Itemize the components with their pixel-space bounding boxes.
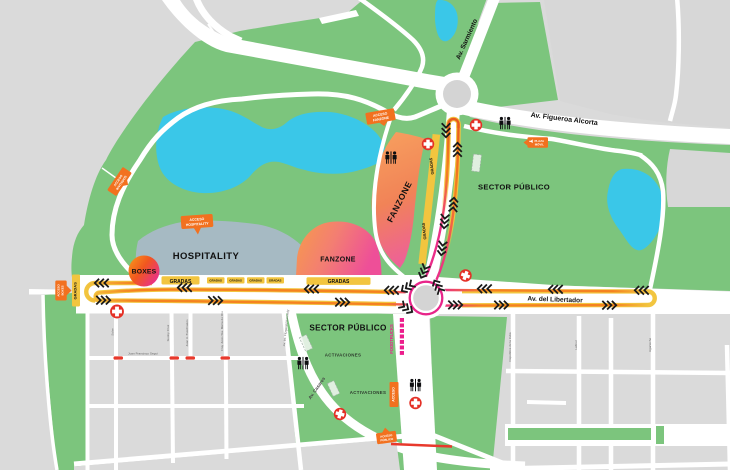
svg-text:Lafinur: Lafinur [574, 340, 578, 349]
svg-text:República de la India: República de la India [508, 332, 512, 361]
svg-text:ACTIVACIONES: ACTIVACIONES [350, 390, 386, 395]
svg-text:Godoy Cruz: Godoy Cruz [166, 324, 170, 341]
svg-text:FOODTRUCKS: FOODTRUCKS [389, 324, 394, 354]
svg-text:GRADAS: GRADAS [72, 282, 77, 300]
svg-text:SECTOR PÚBLICO: SECTOR PÚBLICO [478, 183, 550, 192]
svg-text:GRADAS: GRADAS [269, 278, 282, 282]
svg-text:Juan A. Buschiazzo: Juan A. Buschiazzo [185, 319, 189, 346]
svg-text:ACCESO: ACCESO [392, 387, 396, 402]
svg-text:FANZONE: FANZONE [320, 257, 356, 264]
svg-text:GRADAS: GRADAS [209, 278, 222, 282]
svg-text:Fray Justo Sta. María de Oro: Fray Justo Sta. María de Oro [220, 311, 224, 351]
svg-text:GRADAS: GRADAS [328, 279, 350, 285]
svg-text:Ugarteche: Ugarteche [648, 338, 652, 353]
svg-text:SECTOR PÚBLICO: SECTOR PÚBLICO [309, 322, 387, 333]
svg-text:Soler: Soler [111, 328, 115, 335]
svg-text:GRADAS: GRADAS [249, 278, 262, 282]
svg-text:HOSPITALITY: HOSPITALITY [173, 251, 240, 262]
svg-text:MÓVIL: MÓVIL [535, 142, 544, 147]
svg-text:BOXES: BOXES [132, 269, 157, 276]
svg-text:Juan Francisco Seguí: Juan Francisco Seguí [128, 352, 158, 356]
svg-text:GRADAS: GRADAS [229, 278, 242, 282]
svg-text:ACTIVACIONES: ACTIVACIONES [325, 353, 361, 358]
svg-text:BOXES: BOXES [61, 285, 65, 295]
